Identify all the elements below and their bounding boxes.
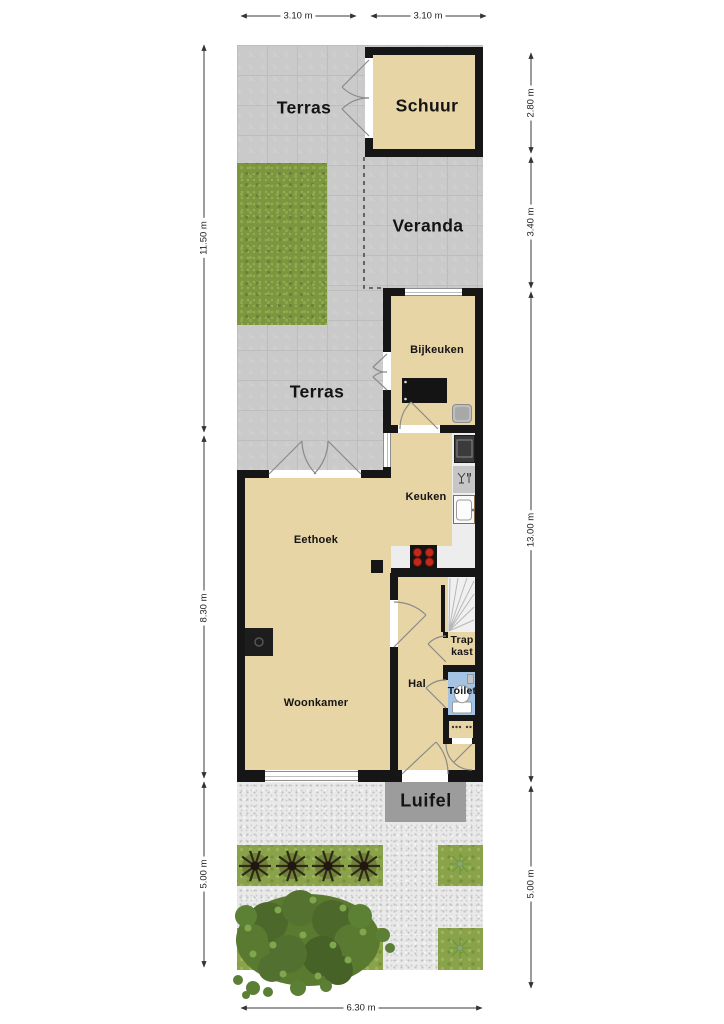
main-floor: [245, 478, 391, 770]
toilet-wall-left-b: [443, 708, 448, 715]
woonkamer-label: Woonkamer: [284, 697, 349, 709]
main-wall-bottom-c: [448, 770, 483, 782]
counter-wall-post: [371, 560, 383, 573]
terras-mid-label: Terras: [290, 382, 345, 403]
schuur-wall-left-b: [365, 138, 373, 157]
dim-left-garden-top: 11.50 m: [199, 218, 210, 258]
stairs: [448, 577, 475, 632]
dim-right-garden: 5.00 m: [526, 866, 537, 901]
schuur-label: Schuur: [396, 96, 459, 117]
bijkeuken-wall-bottom-b: [440, 425, 475, 433]
dim-right-house: 13.00 m: [526, 510, 537, 550]
dim-right-schuur: 2.80 m: [526, 85, 537, 120]
woonkamer-window: [265, 771, 358, 781]
dim-left-garden-bottom: 5.00 m: [199, 856, 210, 891]
toilet-wall-left-a: [443, 672, 448, 680]
main-wall-left: [237, 470, 245, 782]
schuur-wall-right: [475, 47, 483, 157]
bijkeuken-label: Bijkeuken: [410, 344, 464, 356]
schuur-door-opening: [365, 58, 373, 138]
dim-top-left: 3.10 m: [280, 11, 315, 22]
eethoek-label: Eethoek: [294, 534, 338, 546]
wing-wall-left-a: [383, 296, 391, 352]
terras-top-label: Terras: [277, 98, 332, 119]
washing-machine-icon: [402, 378, 447, 403]
meter-cupboard-panel: [449, 721, 473, 738]
main-wall-bottom-a: [237, 770, 265, 782]
schuur-wall-top: [365, 47, 483, 55]
veranda-label: Veranda: [393, 216, 464, 237]
front-door-opening: [402, 770, 448, 782]
dishwasher-icon: [453, 466, 475, 493]
hall-wall-b: [390, 647, 398, 770]
grass-patch: [237, 163, 327, 325]
dim-top-right: 3.10 m: [410, 11, 445, 22]
meter-cupboard-door-opening: [452, 738, 472, 744]
schuur-wall-left-a: [365, 47, 373, 58]
livingroom-door-opening: [390, 600, 398, 647]
bijkeuken-window: [405, 288, 462, 296]
wall-right: [475, 288, 483, 782]
luifel-label: Luifel: [400, 791, 452, 812]
trapkast-label: Trap kast: [443, 634, 481, 658]
bijkeuken-terrace-door-opening: [383, 352, 391, 390]
keuken-window: [383, 433, 391, 467]
dim-left-house: 8.30 m: [199, 590, 210, 625]
stairs-wall-stub: [441, 585, 445, 632]
french-door-opening: [269, 470, 361, 478]
wing-wall-top-a: [383, 288, 405, 296]
floor-plan: Terras Schuur Veranda Terras Luifel Bijk…: [0, 0, 724, 1024]
main-wall-top-b: [361, 470, 391, 478]
toilet-label: Toilet: [448, 685, 476, 697]
border-bed-4: [438, 928, 483, 970]
trapkast-toilet-wall: [443, 665, 475, 672]
oven-icon: [454, 435, 475, 463]
border-bed-1: [237, 845, 383, 886]
schuur-wall-bottom: [365, 149, 483, 157]
dim-right-veranda: 3.40 m: [526, 204, 537, 239]
hall-wall-a: [390, 573, 398, 600]
bijkeuken-inner-door-opening: [398, 425, 440, 433]
dim-bottom: 6.30 m: [343, 1003, 378, 1014]
fireplace-icon: [245, 628, 273, 656]
border-bed-3: [237, 928, 383, 970]
keuken-label: Keuken: [406, 491, 447, 503]
kitchen-hall-wall: [391, 568, 475, 577]
kitchen-sink-icon: [453, 495, 475, 524]
cooktop-icon: [410, 545, 437, 569]
main-wall-bottom-b: [358, 770, 402, 782]
border-bed-2: [438, 845, 483, 886]
bijkeuken-wall-bottom-a: [383, 425, 398, 433]
utility-sink-basin: [455, 407, 469, 420]
hal-label: Hal: [408, 678, 426, 690]
